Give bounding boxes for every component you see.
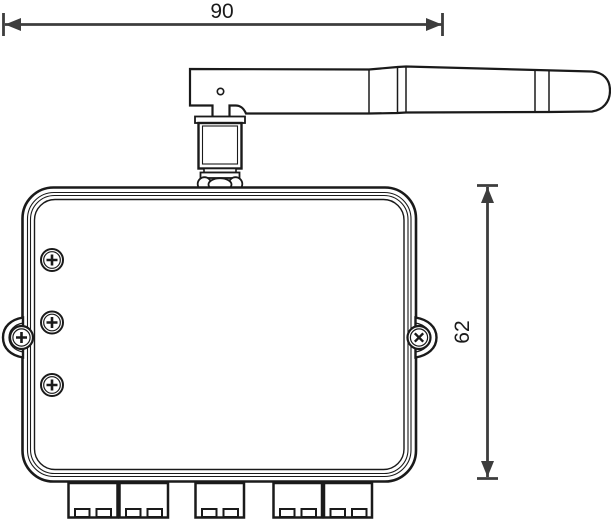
mounting-screw-right: [408, 326, 431, 349]
dimension-width-label: 90: [210, 0, 233, 23]
terminal-slot: [97, 509, 112, 517]
panel-screw: [41, 312, 63, 334]
sma-connector: [195, 117, 245, 191]
enclosure-outer-border: [23, 188, 417, 482]
dimension-width: 90: [4, 0, 443, 36]
terminal-block: [324, 483, 372, 518]
arrowhead-up-icon: [481, 187, 494, 203]
terminal-slot: [280, 509, 295, 517]
drawing-svg: 90 62: [0, 0, 611, 522]
antenna: [190, 67, 610, 118]
terminal-slot: [75, 509, 90, 517]
terminal-block: [120, 483, 169, 518]
mounting-screw-left: [10, 326, 33, 349]
terminal-block: [274, 483, 323, 518]
terminal-slot: [302, 509, 317, 517]
terminal-blocks: [69, 483, 373, 518]
dimension-height-label: 62: [451, 320, 474, 343]
terminal-slot: [331, 509, 346, 517]
panel-screw: [41, 249, 63, 271]
arrowhead-down-icon: [481, 461, 494, 477]
antenna-body: [190, 67, 610, 118]
panel-screw: [41, 374, 63, 396]
terminal-slot: [148, 509, 163, 517]
technical-drawing-canvas: 90 62: [0, 0, 611, 522]
terminal-block: [69, 483, 118, 518]
arrowhead-right-icon: [426, 18, 442, 31]
arrowhead-left-icon: [5, 18, 21, 31]
antenna-hinge-hole: [217, 88, 223, 94]
terminal-block: [196, 483, 245, 518]
terminal-slot: [202, 509, 217, 517]
terminal-slot: [126, 509, 141, 517]
dimension-height: 62: [451, 186, 498, 479]
terminal-slot: [352, 509, 367, 517]
enclosure: [23, 188, 417, 482]
terminal-slot: [224, 509, 239, 517]
connector-barrel: [199, 123, 242, 169]
